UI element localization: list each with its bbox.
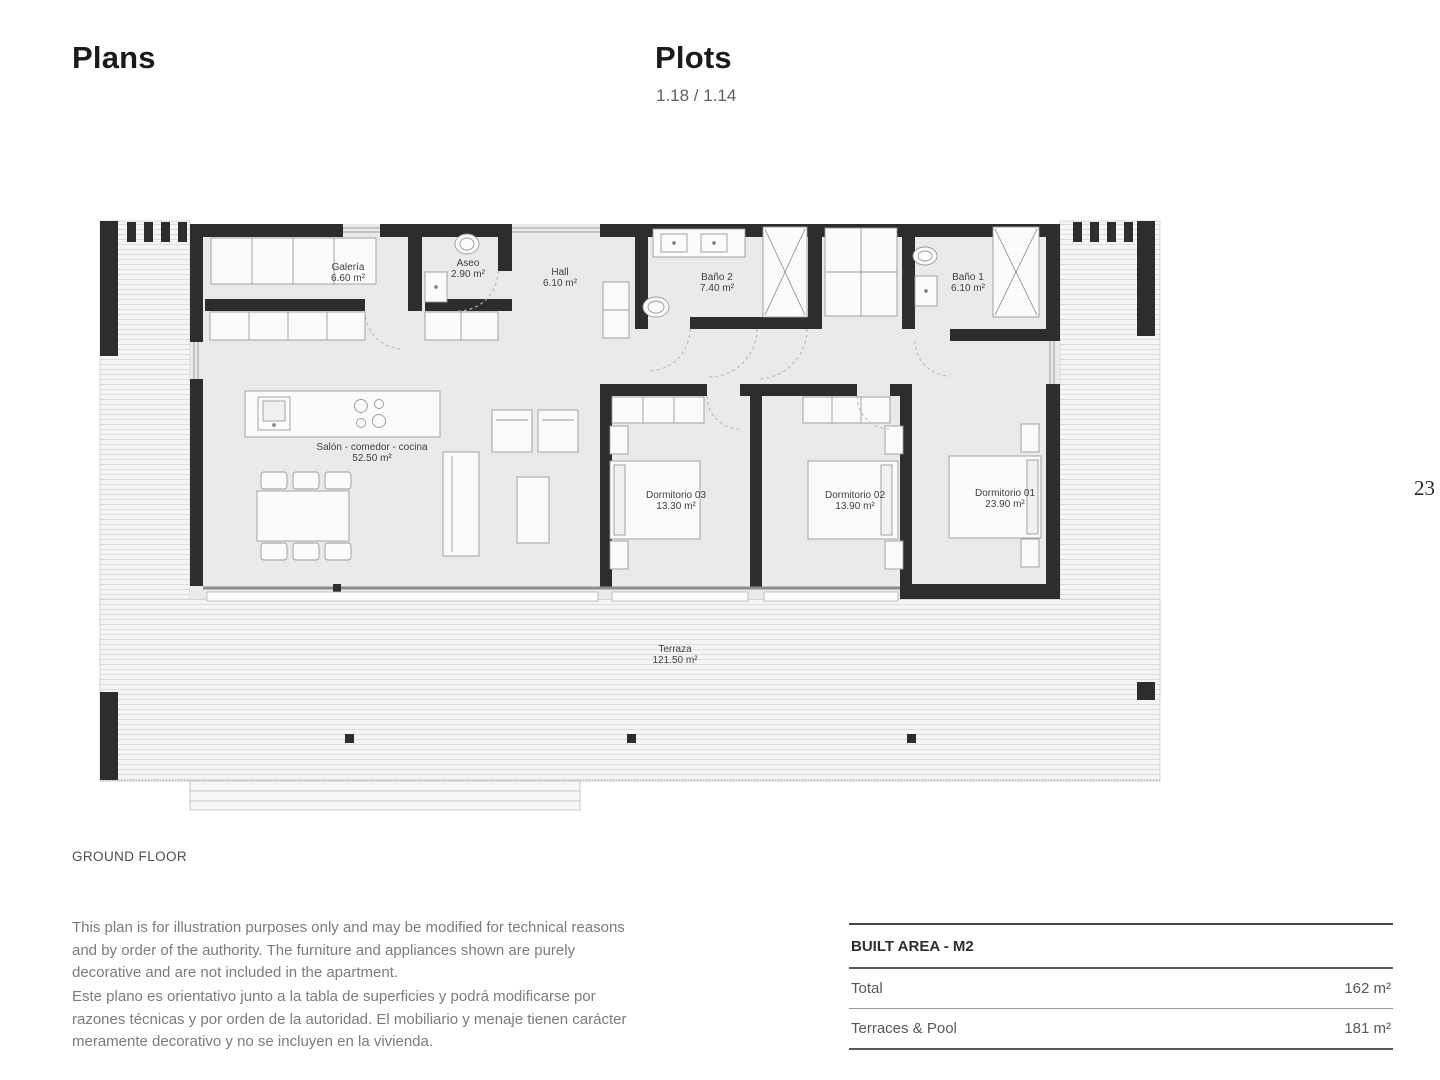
built-area-header-label: BUILT AREA - M2 [849,924,1393,968]
disclaimer-es: Este plano es orientativo junto a la tab… [72,986,644,1054]
terrace-steps [190,781,580,810]
page-title-plans: Plans [72,40,156,76]
page-title-plots: Plots [655,40,732,76]
floor-plan-svg: Galería 6.60 m² Aseo 2.90 m² Hall 6.10 m… [95,214,1165,812]
room-label-terraza: Terraza [658,644,692,655]
room-label-dorm02: Dormitorio 02 [825,490,885,501]
kitchen-counter [210,312,498,340]
room-area-aseo: 2.90 m² [451,269,486,280]
room-area-hall: 6.10 m² [543,278,578,289]
room-area-salon: 52.50 m² [352,453,392,464]
south-facade-glass [203,584,900,601]
room-area-bano1: 6.10 m² [951,283,986,294]
dining-table [257,472,351,560]
ground-floor-label: GROUND FLOOR [72,849,187,864]
room-area-terraza: 121.50 m² [652,655,698,666]
room-label-bano2: Baño 2 [701,272,733,283]
room-label-dorm03: Dormitorio 03 [646,490,706,501]
room-label-bano1: Baño 1 [952,272,984,283]
floor-plan: Galería 6.60 m² Aseo 2.90 m² Hall 6.10 m… [95,214,1165,812]
room-label-galeria: Galería [332,262,365,273]
shower-icon [763,227,807,317]
room-area-dorm03: 13.30 m² [656,501,696,512]
row-label-total: Total [849,968,1221,1009]
row-value-total: 162 m² [1221,968,1393,1009]
kitchen-island [245,391,440,437]
dressing-wardrobe [825,228,897,316]
coffee-table [517,477,549,543]
room-label-aseo: Aseo [457,258,480,269]
plots-subtitle: 1.18 / 1.14 [656,86,736,106]
built-area-table: BUILT AREA - M2 Total 162 m² Terraces & … [849,923,1393,1050]
shower-icon [993,227,1039,317]
page-number: 23 [1414,476,1435,501]
built-area-table-header: BUILT AREA - M2 [849,924,1393,968]
room-area-dorm02: 13.90 m² [835,501,875,512]
room-label-salon: Salón - comedor - cocina [316,442,428,453]
hall-cabinet [603,282,629,338]
row-value-terraces: 181 m² [1221,1009,1393,1050]
room-area-bano2: 7.40 m² [700,283,735,294]
room-area-galeria: 6.60 m² [331,273,366,284]
row-label-terraces: Terraces & Pool [849,1009,1221,1050]
room-label-hall: Hall [551,267,568,278]
table-row: Total 162 m² [849,968,1393,1009]
room-label-dorm01: Dormitorio 01 [975,488,1035,499]
disclaimer-en: This plan is for illustration purposes o… [72,917,644,985]
table-row: Terraces & Pool 181 m² [849,1009,1393,1050]
room-area-dorm01: 23.90 m² [985,499,1025,510]
